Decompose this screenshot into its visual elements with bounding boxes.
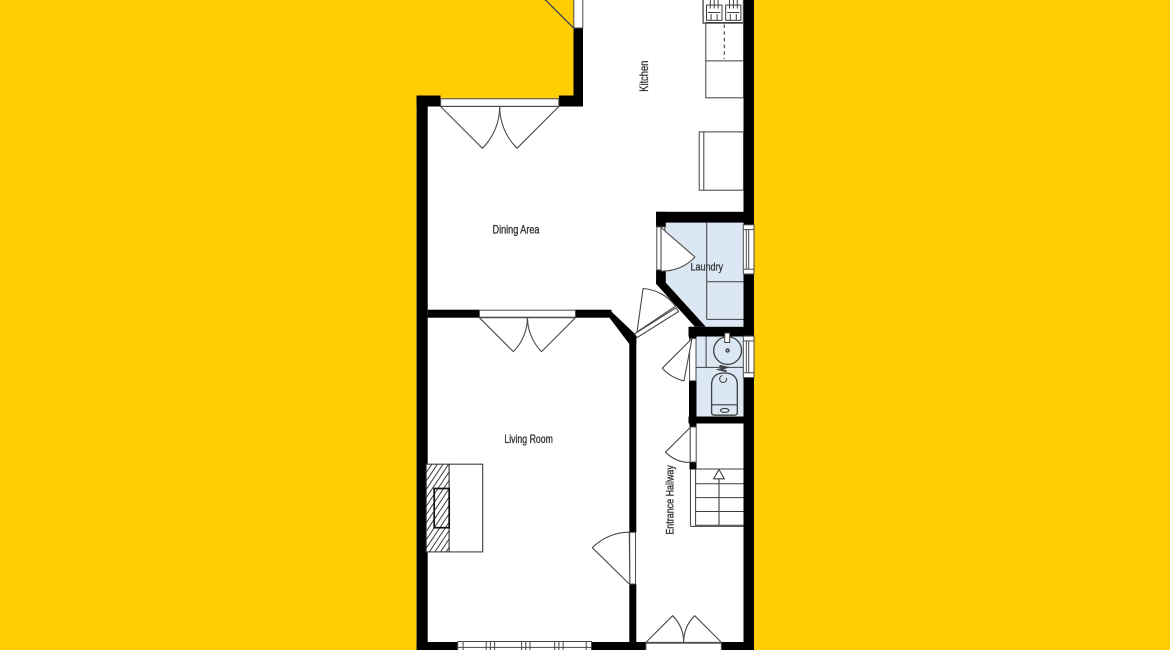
svg-text:Kitchen: Kitchen xyxy=(638,61,651,92)
svg-text:Living Room: Living Room xyxy=(504,433,553,446)
svg-text:Entrance Hallway: Entrance Hallway xyxy=(665,465,677,535)
svg-text:Laundry: Laundry xyxy=(690,261,723,273)
svg-text:Dining Area: Dining Area xyxy=(493,224,540,237)
